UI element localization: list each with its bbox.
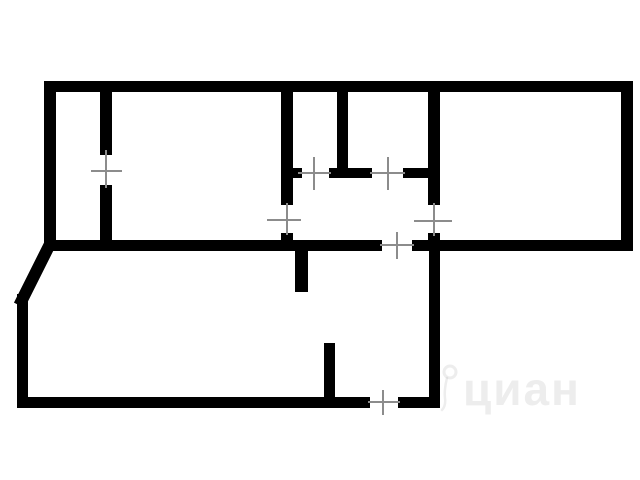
wall-segments <box>17 81 633 408</box>
door-exterior-bottom <box>368 390 400 415</box>
exterior-bottom-wall-left <box>17 397 370 408</box>
exterior-top-wall <box>44 81 633 92</box>
exterior-left-wall-upper <box>44 81 56 250</box>
door-left-room-divider <box>91 150 122 188</box>
exterior-right-wall-lower <box>429 250 440 408</box>
room-divider-lower <box>100 185 112 245</box>
room-divider-upper <box>100 91 112 155</box>
door-wc <box>298 157 331 190</box>
diagonal-corner-wall <box>22 244 50 300</box>
door-hallway-left <box>267 203 301 235</box>
partition-stub-below-mid-wall <box>295 250 308 292</box>
partition-stub-above-bottom <box>324 343 335 401</box>
mid-wall-left-segment <box>44 240 382 251</box>
floorplan-drawing <box>0 0 640 480</box>
mid-wall-right-segment <box>412 240 633 251</box>
hallway-left-wall-upper <box>281 91 293 205</box>
hallway-right-wall-upper <box>428 91 440 205</box>
door-hallway-right <box>414 203 452 236</box>
exterior-left-wall-lower <box>17 294 28 408</box>
door-hallway-bottom <box>380 232 414 259</box>
door-bathroom <box>370 157 405 190</box>
floorplan-image: циан <box>0 0 640 480</box>
bath-wc-divider <box>337 91 348 178</box>
door-opening-marks <box>91 150 452 415</box>
bath-bottom-wall-middle <box>329 168 372 178</box>
exterior-right-wall <box>621 81 633 250</box>
